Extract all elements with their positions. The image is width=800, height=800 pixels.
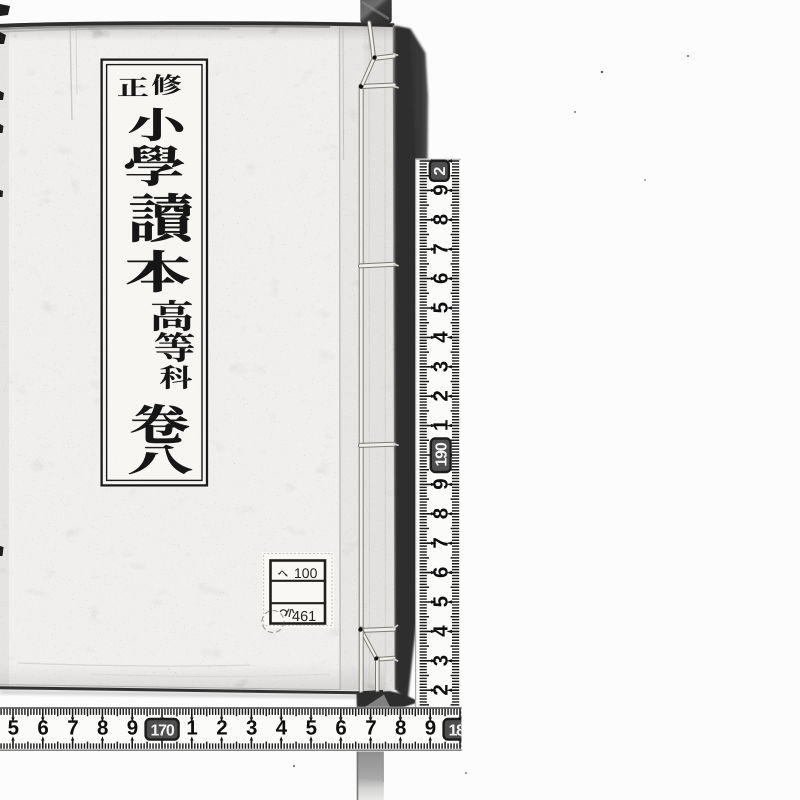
svg-text:9: 9 [425, 717, 436, 740]
svg-text:190: 190 [433, 442, 450, 466]
svg-text:8: 8 [395, 717, 406, 740]
svg-text:3: 3 [429, 361, 452, 372]
svg-text:9: 9 [429, 479, 452, 490]
svg-text:9: 9 [429, 185, 452, 196]
svg-text:9: 9 [127, 717, 138, 740]
svg-text:2: 2 [216, 717, 227, 740]
svg-text:8: 8 [429, 508, 452, 519]
svg-text:5: 5 [429, 302, 452, 313]
svg-text:4: 4 [276, 717, 288, 740]
svg-text:7: 7 [429, 538, 452, 549]
svg-text:5: 5 [429, 596, 452, 607]
svg-text:6: 6 [335, 717, 346, 740]
svg-text:4: 4 [429, 625, 452, 637]
svg-text:5: 5 [8, 717, 19, 740]
svg-text:2: 2 [429, 391, 452, 402]
svg-text:6: 6 [429, 567, 452, 578]
svg-text:170: 170 [150, 722, 174, 739]
svg-text:8: 8 [429, 214, 452, 225]
svg-text:3: 3 [429, 655, 452, 666]
svg-text:7: 7 [429, 244, 452, 255]
svg-text:461: 461 [292, 609, 316, 625]
svg-text:8: 8 [97, 717, 108, 740]
svg-text:1: 1 [429, 420, 452, 431]
svg-text:7: 7 [67, 717, 78, 740]
svg-text:1: 1 [186, 717, 197, 740]
svg-text:2: 2 [432, 166, 449, 175]
svg-text:100: 100 [294, 565, 318, 581]
svg-text:5: 5 [306, 717, 317, 740]
svg-text:4: 4 [429, 331, 452, 343]
svg-text:6: 6 [37, 717, 48, 740]
svg-text:2: 2 [429, 685, 452, 696]
svg-text:7: 7 [365, 717, 376, 740]
svg-text:6: 6 [429, 273, 452, 284]
svg-text:3: 3 [246, 717, 257, 740]
